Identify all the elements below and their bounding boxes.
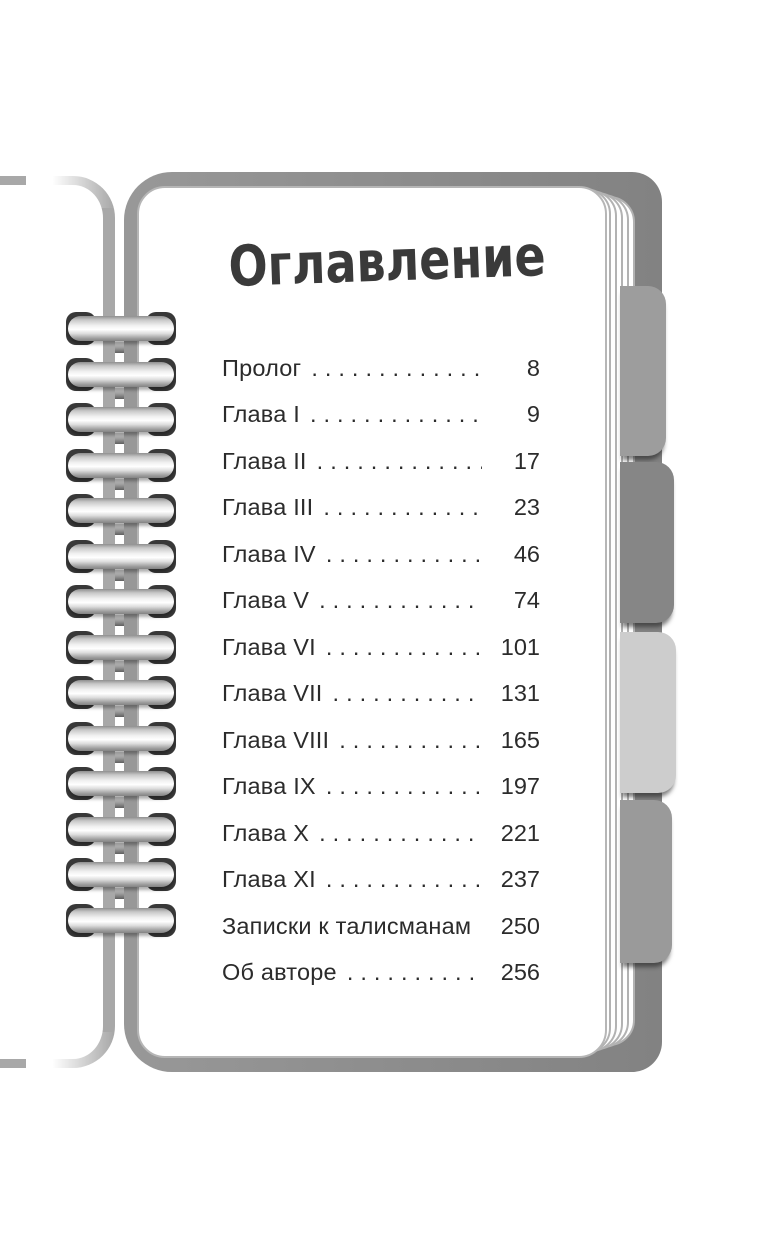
ring-wire <box>68 589 174 614</box>
dot-leader: ........................................… <box>317 448 482 475</box>
toc-entry-label: Пролог <box>222 355 301 382</box>
ring-wire <box>68 680 174 705</box>
toc-entry-page-number: 256 <box>486 959 540 986</box>
toc-entry[interactable]: Глава IV ...............................… <box>222 531 540 578</box>
toc-entry-page-number: 237 <box>486 866 540 893</box>
ring-wire <box>68 316 174 341</box>
toc-entry-label: Глава V <box>222 587 309 614</box>
dot-leader: ........................................… <box>339 727 482 754</box>
toc-entry[interactable]: Об авторе ..............................… <box>222 950 540 997</box>
toc-entry[interactable]: Глава I ................................… <box>222 392 540 439</box>
spiral-ring <box>66 858 176 891</box>
toc-entry-label: Глава IX <box>222 773 316 800</box>
toc-entry[interactable]: Глава V ................................… <box>222 578 540 625</box>
spiral-ring <box>66 676 176 709</box>
toc-entry-page-number: 23 <box>486 494 540 521</box>
spiral-ring <box>66 358 176 391</box>
toc-entry-label: Глава IV <box>222 541 316 568</box>
dot-leader: ........................................… <box>323 494 482 521</box>
toc-entry-label: Глава VII <box>222 680 323 707</box>
dot-leader: ........................................… <box>311 355 482 382</box>
dot-leader: ........................................… <box>310 401 482 428</box>
ring-wire <box>68 498 174 523</box>
spiral-ring <box>66 403 176 436</box>
toc-entry-page-number: 250 <box>486 913 540 940</box>
spiral-ring <box>66 767 176 800</box>
toc-entry-label: Глава I <box>222 401 300 428</box>
spiral-ring <box>66 449 176 482</box>
ring-wire <box>68 635 174 660</box>
toc-entry-page-number: 8 <box>486 355 540 382</box>
ring-wire <box>68 453 174 478</box>
spiral-ring <box>66 904 176 937</box>
toc-entry-page-number: 9 <box>486 401 540 428</box>
toc-entry-page-number: 131 <box>486 680 540 707</box>
table-of-contents: Пролог .................................… <box>222 345 540 996</box>
toc-entry-page-number: 101 <box>486 634 540 661</box>
ring-wire <box>68 407 174 432</box>
spiral-ring <box>66 494 176 527</box>
dot-leader: ........................................… <box>326 634 482 661</box>
toc-entry[interactable]: Глава IX ...............................… <box>222 764 540 811</box>
toc-entry[interactable]: Глава X ................................… <box>222 810 540 857</box>
index-tab-2[interactable] <box>620 462 674 623</box>
dot-leader: ........................................… <box>326 866 482 893</box>
toc-entry[interactable]: Глава VI ...............................… <box>222 624 540 671</box>
dot-leader: ........................................… <box>326 541 482 568</box>
toc-entry[interactable]: Глава II ...............................… <box>222 438 540 485</box>
ring-wire <box>68 817 174 842</box>
dot-leader: ........................................… <box>319 587 482 614</box>
toc-entry-label: Глава II <box>222 448 307 475</box>
dot-leader: ........................................… <box>481 913 482 940</box>
toc-entry-page-number: 197 <box>486 773 540 800</box>
index-tab-3[interactable] <box>620 632 676 793</box>
toc-entry-page-number: 46 <box>486 541 540 568</box>
toc-entry-page-number: 221 <box>486 820 540 847</box>
dot-leader: ........................................… <box>347 959 482 986</box>
toc-entry-label: Глава XI <box>222 866 316 893</box>
toc-entry[interactable]: Глава XI ...............................… <box>222 857 540 904</box>
toc-entry-page-number: 74 <box>486 587 540 614</box>
toc-entry-label: Записки к талисманам <box>222 913 471 940</box>
spiral-ring <box>66 631 176 664</box>
toc-entry-label: Глава III <box>222 494 313 521</box>
ring-wire <box>68 862 174 887</box>
spiral-ring <box>66 540 176 573</box>
toc-entry[interactable]: Записки к талисманам ...................… <box>222 903 540 950</box>
dot-leader: ........................................… <box>326 773 482 800</box>
dot-leader: ........................................… <box>333 680 482 707</box>
spiral-ring <box>66 813 176 846</box>
spiral-ring <box>66 585 176 618</box>
index-tab-1[interactable] <box>620 286 666 456</box>
spiral-ring <box>66 722 176 755</box>
ring-wire <box>68 771 174 796</box>
toc-entry-label: Глава VIII <box>222 727 329 754</box>
toc-entry-label: Глава VI <box>222 634 316 661</box>
ring-wire <box>68 544 174 569</box>
toc-entry-label: Глава X <box>222 820 309 847</box>
toc-entry[interactable]: Глава VII ..............................… <box>222 671 540 718</box>
ring-wire <box>68 908 174 933</box>
toc-entry[interactable]: Глава VIII .............................… <box>222 717 540 764</box>
ring-wire <box>68 726 174 751</box>
toc-entry-label: Об авторе <box>222 959 337 986</box>
dot-leader: ........................................… <box>319 820 482 847</box>
spiral-ring <box>66 312 176 345</box>
toc-entry[interactable]: Пролог .................................… <box>222 345 540 392</box>
toc-entry-page-number: 17 <box>486 448 540 475</box>
ring-wire <box>68 362 174 387</box>
index-tab-4[interactable] <box>620 800 672 963</box>
toc-entry[interactable]: Глава III ..............................… <box>222 485 540 532</box>
notebook: Оглавление Пролог ......................… <box>0 0 768 1240</box>
toc-entry-page-number: 165 <box>486 727 540 754</box>
